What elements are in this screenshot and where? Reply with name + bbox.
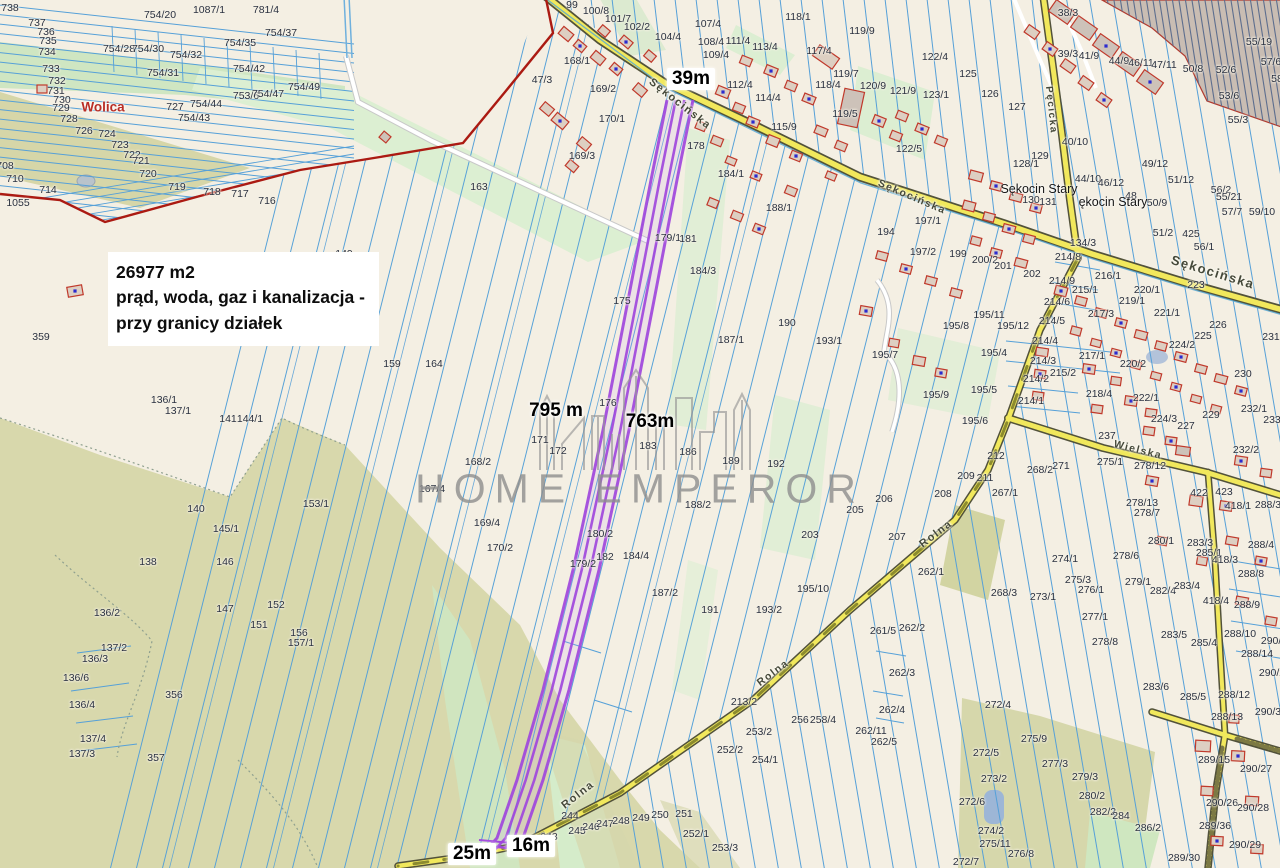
listing-utilities-line2: przy granicy działek — [116, 313, 282, 333]
listing-utilities-line: prąd, woda, gaz i kanalizacja - — [116, 287, 365, 307]
map-viewport[interactable]: 7387377367357347337327317307297287267247… — [0, 0, 1280, 868]
listing-area: 26977 m2 — [116, 262, 195, 282]
watermark-text: HOME EMPEROR — [415, 466, 865, 513]
listing-info-box: 26977 m2 prąd, woda, gaz i kanalizacja -… — [108, 252, 379, 346]
cadastral-map-canvas — [0, 0, 1280, 868]
